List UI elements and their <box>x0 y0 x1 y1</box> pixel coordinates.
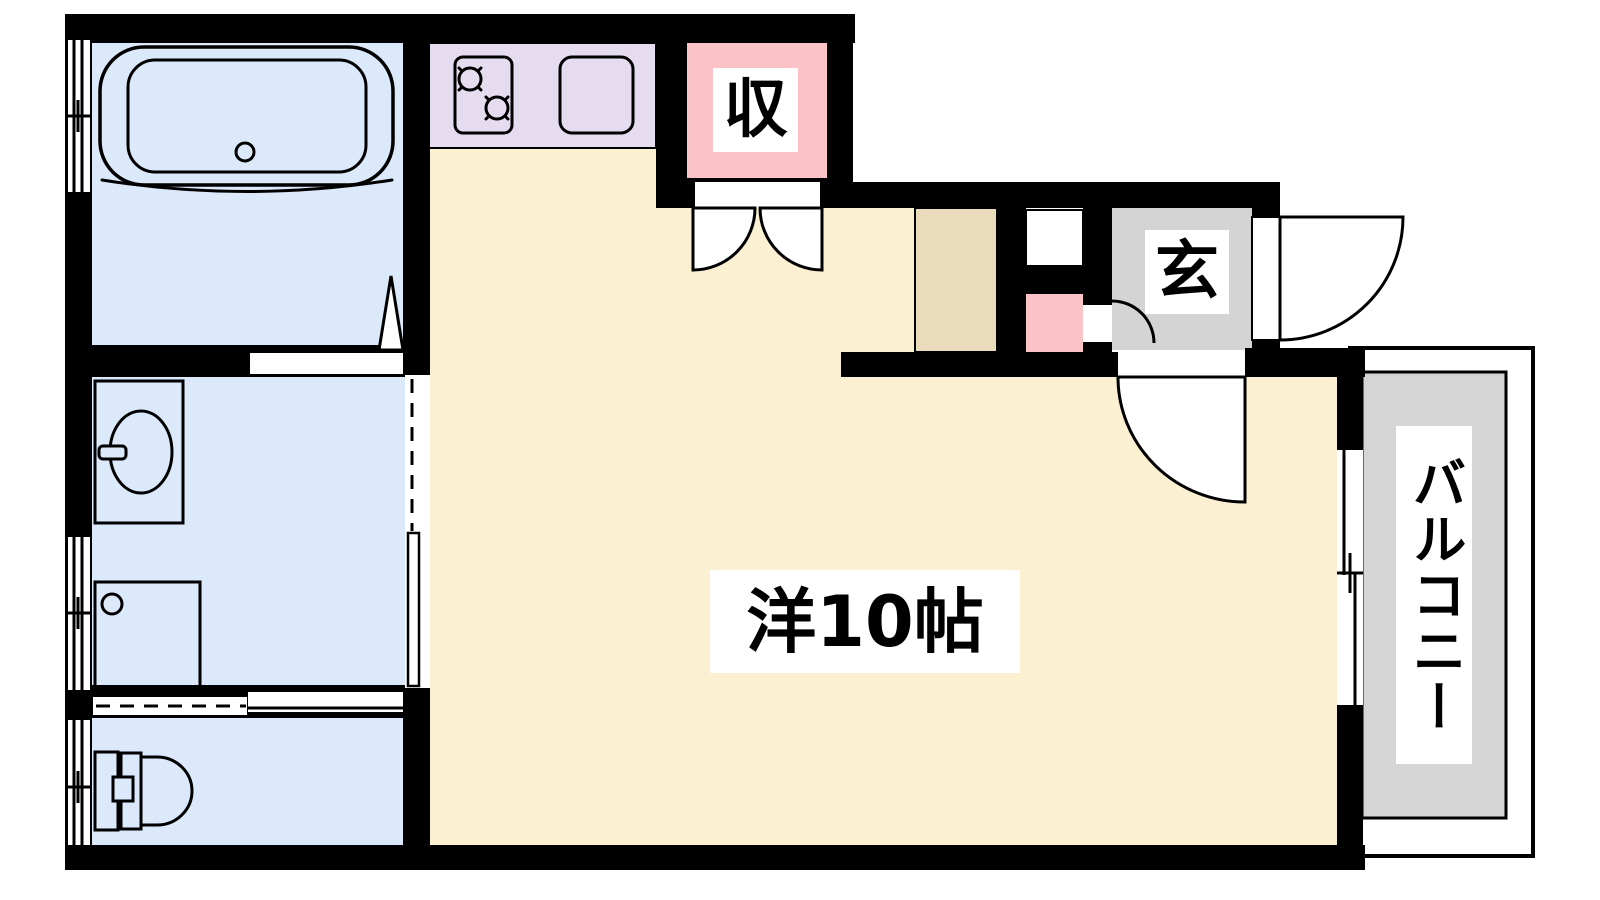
washroom-slide-panel <box>408 533 419 686</box>
pipe-space <box>1026 210 1083 266</box>
main-room-area-left <box>428 43 656 845</box>
hall-nook <box>1026 294 1083 352</box>
basin-faucet <box>99 446 126 459</box>
wall-entrance-bottom <box>1245 348 1365 377</box>
wall-bottom <box>65 845 1365 870</box>
front-door-swing <box>1280 217 1403 340</box>
floorplan: 洋10帖 収 玄 バルコニー <box>0 0 1600 900</box>
hall-cabinet <box>915 208 997 352</box>
wall-hall-3 <box>1026 266 1083 294</box>
toilet-flush <box>113 777 133 801</box>
toilet-area <box>92 718 403 845</box>
bathroom-door-opening <box>250 353 403 374</box>
front-door-jamb <box>1252 217 1280 340</box>
floorplan-canvas <box>0 0 1600 900</box>
wall-right-lower <box>1337 705 1363 860</box>
washroom-area <box>92 375 405 688</box>
wall-hall-bottom <box>841 352 1118 377</box>
wall-toilet-right <box>403 688 430 848</box>
main-room-label: 洋10帖 <box>710 570 1020 673</box>
closet-label: 収 <box>713 68 798 152</box>
hall-door-opening <box>1083 305 1112 342</box>
wall-top <box>65 14 855 43</box>
balcony-label: バルコニー <box>1396 426 1472 764</box>
wall-right-upper <box>1337 377 1363 450</box>
wall-hall-1 <box>997 208 1026 352</box>
wall-bath-right <box>403 14 430 377</box>
wall-entrance-top <box>1252 182 1280 217</box>
main-room-area-center <box>656 207 853 845</box>
closet-door-opening <box>695 182 820 208</box>
entrance-hall-opening <box>1118 352 1245 377</box>
wall-north-east <box>853 182 1278 208</box>
entrance-label: 玄 <box>1145 230 1229 314</box>
